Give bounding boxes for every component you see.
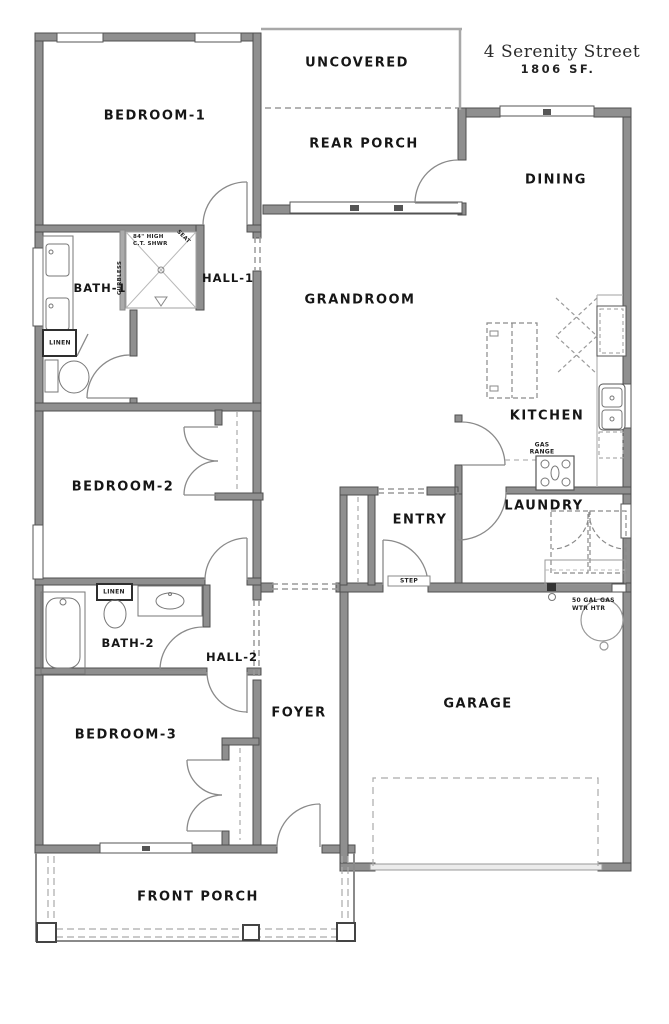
- shower-curbless-note: CURBLESS: [117, 261, 123, 295]
- kitchen-dishwasher: [599, 432, 623, 458]
- garage-door-opening: [370, 778, 602, 870]
- bath1-vanity: [43, 236, 73, 336]
- shower-note-line2: C.T. SHWR: [133, 241, 168, 247]
- kitchen-island: [487, 323, 537, 398]
- room-label-garage: GARAGE: [443, 697, 512, 712]
- bath2-toilet: [104, 600, 126, 628]
- room-label-grandroom: GRANDROOM: [305, 293, 416, 308]
- step-label: STEP: [400, 578, 418, 585]
- bath2-linen-label: LINEN: [103, 589, 125, 596]
- room-label-foyer: FOYER: [271, 706, 326, 721]
- room-label-hall-1: HALL-1: [202, 271, 254, 285]
- room-label-hall-2: HALL-2: [206, 650, 258, 664]
- room-label-kitchen: KITCHEN: [510, 409, 584, 424]
- gas-range-label-line2: RANGE: [530, 449, 555, 456]
- kitchen-range: [536, 456, 574, 490]
- bath1-linen-label: LINEN: [49, 340, 71, 347]
- room-label-laundry: LAUNDRY: [504, 499, 583, 514]
- water-heater-label-line1: 50 GAL GAS: [572, 597, 615, 604]
- floor-plan: 4 Serenity Street 1806 SF. BEDROOM-1 UNC…: [0, 0, 669, 1024]
- gas-range-label-line1: GAS: [535, 442, 550, 449]
- kitchen-sink: [599, 384, 625, 430]
- plan-title: 4 Serenity Street: [484, 42, 640, 62]
- plan-area: 1806 SF.: [521, 62, 596, 76]
- room-label-uncovered: UNCOVERED: [305, 56, 409, 71]
- door-swings: [77, 160, 506, 847]
- room-label-dining: DINING: [525, 173, 587, 188]
- shower-note-line1: 84" HIGH: [133, 234, 164, 240]
- kitchen-refrigerator: [597, 306, 626, 356]
- water-heater-label-line2: WTR HTR: [572, 605, 605, 612]
- room-label-bedroom-1: BEDROOM-1: [104, 109, 207, 124]
- laundry-washer-dryer: [551, 511, 626, 573]
- laundry-counter: [545, 560, 625, 584]
- room-label-entry: ENTRY: [393, 513, 448, 528]
- room-label-rear-porch: REAR PORCH: [309, 137, 419, 152]
- room-label-front-porch: FRONT PORCH: [137, 890, 259, 905]
- dashed-openings: [254, 108, 458, 680]
- kitchen-upper-cabinet-marks: [556, 298, 597, 374]
- room-label-bath-2: BATH-2: [101, 636, 154, 650]
- room-label-bedroom-2: BEDROOM-2: [72, 480, 175, 495]
- bath1-toilet: [45, 360, 89, 393]
- bath2-vanity: [138, 586, 202, 616]
- bath2-tub: [41, 592, 85, 674]
- room-label-bedroom-3: BEDROOM-3: [75, 728, 178, 743]
